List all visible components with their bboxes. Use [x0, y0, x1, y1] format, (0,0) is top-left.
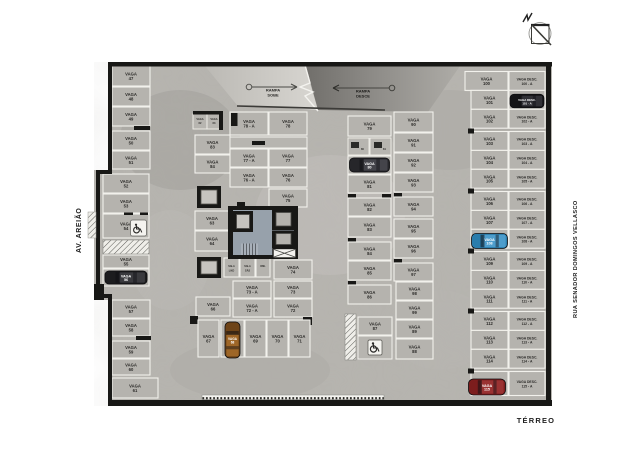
- svg-text:48: 48: [129, 96, 134, 101]
- svg-text:93: 93: [411, 182, 416, 187]
- svg-text:114 - A: 114 - A: [522, 360, 533, 364]
- svg-text:110: 110: [486, 280, 493, 285]
- svg-text:110 - A: 110 - A: [522, 281, 533, 285]
- svg-text:78 - A: 78 - A: [243, 123, 254, 128]
- svg-text:113: 113: [486, 340, 493, 345]
- svg-text:49: 49: [129, 116, 134, 121]
- svg-text:VAGA DESC.: VAGA DESC.: [517, 115, 538, 119]
- svg-text:SALA: SALA: [228, 265, 235, 268]
- svg-text:115 - A: 115 - A: [522, 384, 533, 388]
- svg-text:70: 70: [275, 338, 280, 343]
- svg-text:112: 112: [486, 321, 493, 326]
- svg-text:VAGA DESC.: VAGA DESC.: [517, 175, 538, 179]
- svg-text:109 - A: 109 - A: [522, 262, 534, 266]
- svg-text:100 - A: 100 - A: [522, 82, 534, 86]
- svg-text:81: 81: [367, 184, 372, 189]
- svg-text:TÉRREO: TÉRREO: [517, 416, 555, 425]
- svg-text:108: 108: [486, 241, 492, 245]
- svg-text:88: 88: [412, 349, 417, 354]
- svg-text:60: 60: [129, 367, 134, 372]
- svg-text:82: 82: [367, 207, 372, 212]
- svg-text:58: 58: [129, 327, 134, 332]
- svg-text:112 - A: 112 - A: [522, 322, 533, 326]
- svg-text:105: 105: [486, 179, 494, 184]
- svg-text:102: 102: [486, 119, 494, 124]
- svg-text:86: 86: [367, 294, 372, 299]
- svg-text:83: 83: [367, 227, 372, 232]
- svg-text:111: 111: [486, 299, 493, 304]
- svg-text:72: 72: [291, 308, 296, 313]
- svg-text:84: 84: [367, 251, 372, 256]
- svg-text:111 - A: 111 - A: [522, 300, 533, 304]
- svg-text:94: 94: [411, 206, 416, 211]
- svg-text:75: 75: [286, 198, 291, 203]
- svg-text:66: 66: [211, 306, 216, 311]
- svg-text:103 - A: 103 - A: [522, 142, 534, 146]
- svg-text:RUA SENADOR DOMINGOS VELLASCO: RUA SENADOR DOMINGOS VELLASCO: [573, 200, 579, 318]
- svg-text:73 - A: 73 - A: [246, 289, 257, 294]
- svg-text:104: 104: [486, 160, 494, 165]
- svg-text:VAGA DESC.: VAGA DESC.: [517, 156, 538, 160]
- svg-text:71: 71: [297, 338, 302, 343]
- svg-text:50: 50: [129, 140, 134, 145]
- svg-text:SOBE: SOBE: [267, 93, 279, 98]
- svg-text:57: 57: [129, 309, 134, 314]
- svg-text:72 - A: 72 - A: [246, 308, 257, 313]
- svg-text:61: 61: [133, 388, 138, 393]
- svg-text:47: 47: [129, 76, 134, 81]
- svg-text:84: 84: [210, 164, 215, 169]
- svg-text:56: 56: [124, 278, 128, 282]
- svg-text:85: 85: [367, 270, 372, 275]
- svg-text:89: 89: [412, 329, 417, 334]
- svg-text:107: 107: [486, 220, 494, 225]
- svg-text:103: 103: [486, 141, 494, 146]
- svg-text:78: 78: [286, 123, 291, 128]
- svg-text:101 - A: 101 - A: [522, 101, 532, 105]
- svg-text:90: 90: [411, 122, 416, 127]
- svg-text:80: 80: [367, 165, 371, 169]
- svg-text:87: 87: [373, 326, 378, 331]
- svg-text:77: 77: [286, 158, 291, 163]
- svg-text:92: 92: [411, 162, 416, 167]
- svg-text:97: 97: [411, 272, 416, 277]
- svg-text:79: 79: [367, 126, 372, 131]
- svg-text:105 - A: 105 - A: [522, 180, 534, 184]
- svg-text:VAGA: VAGA: [210, 117, 217, 121]
- svg-text:91: 91: [411, 142, 416, 147]
- svg-text:53: 53: [124, 203, 129, 208]
- svg-text:96: 96: [411, 248, 416, 253]
- svg-text:VAGA DESC.: VAGA DESC.: [517, 216, 538, 220]
- svg-text:63: 63: [210, 220, 215, 225]
- svg-text:83: 83: [210, 144, 215, 149]
- svg-text:DML: DML: [260, 265, 266, 268]
- svg-text:115: 115: [484, 387, 490, 391]
- svg-text:68: 68: [231, 340, 235, 344]
- svg-text:102 - A: 102 - A: [522, 120, 534, 124]
- svg-text:106: 106: [486, 201, 494, 206]
- svg-text:114: 114: [486, 359, 493, 364]
- svg-text:VAGA DESC.: VAGA DESC.: [517, 235, 538, 239]
- svg-text:104 - A: 104 - A: [522, 161, 534, 165]
- svg-text:106 - A: 106 - A: [522, 202, 534, 206]
- svg-text:73: 73: [291, 289, 296, 294]
- svg-text:64: 64: [210, 241, 215, 246]
- svg-text:69: 69: [253, 338, 258, 343]
- svg-text:109: 109: [486, 261, 494, 266]
- svg-text:LIXO: LIXO: [229, 269, 235, 272]
- svg-text:VAGA: VAGA: [196, 117, 203, 121]
- svg-text:GÁS: GÁS: [245, 269, 251, 272]
- svg-text:99: 99: [412, 310, 417, 315]
- svg-text:108 - A: 108 - A: [522, 240, 534, 244]
- svg-text:76 - A: 76 - A: [243, 177, 254, 182]
- svg-text:113 - A: 113 - A: [522, 341, 533, 345]
- svg-text:76: 76: [286, 177, 291, 182]
- svg-text:59: 59: [129, 349, 134, 354]
- svg-text:55: 55: [124, 261, 129, 266]
- svg-text:51: 51: [129, 160, 134, 165]
- svg-text:95: 95: [411, 228, 416, 233]
- svg-text:100: 100: [483, 81, 491, 86]
- svg-text:VAGA DESC.: VAGA DESC.: [517, 78, 538, 82]
- svg-text:74: 74: [291, 269, 296, 274]
- svg-text:77 - A: 77 - A: [243, 158, 254, 163]
- svg-text:107 - A: 107 - A: [522, 221, 534, 225]
- svg-text:67: 67: [206, 338, 211, 343]
- svg-text:52: 52: [124, 183, 129, 188]
- svg-text:AV. AREIÃO: AV. AREIÃO: [74, 208, 83, 253]
- svg-text:101: 101: [486, 100, 494, 105]
- svg-text:98: 98: [412, 291, 417, 296]
- svg-text:SALA: SALA: [244, 265, 251, 268]
- svg-text:DESCE: DESCE: [356, 94, 370, 99]
- svg-text:54: 54: [124, 226, 129, 231]
